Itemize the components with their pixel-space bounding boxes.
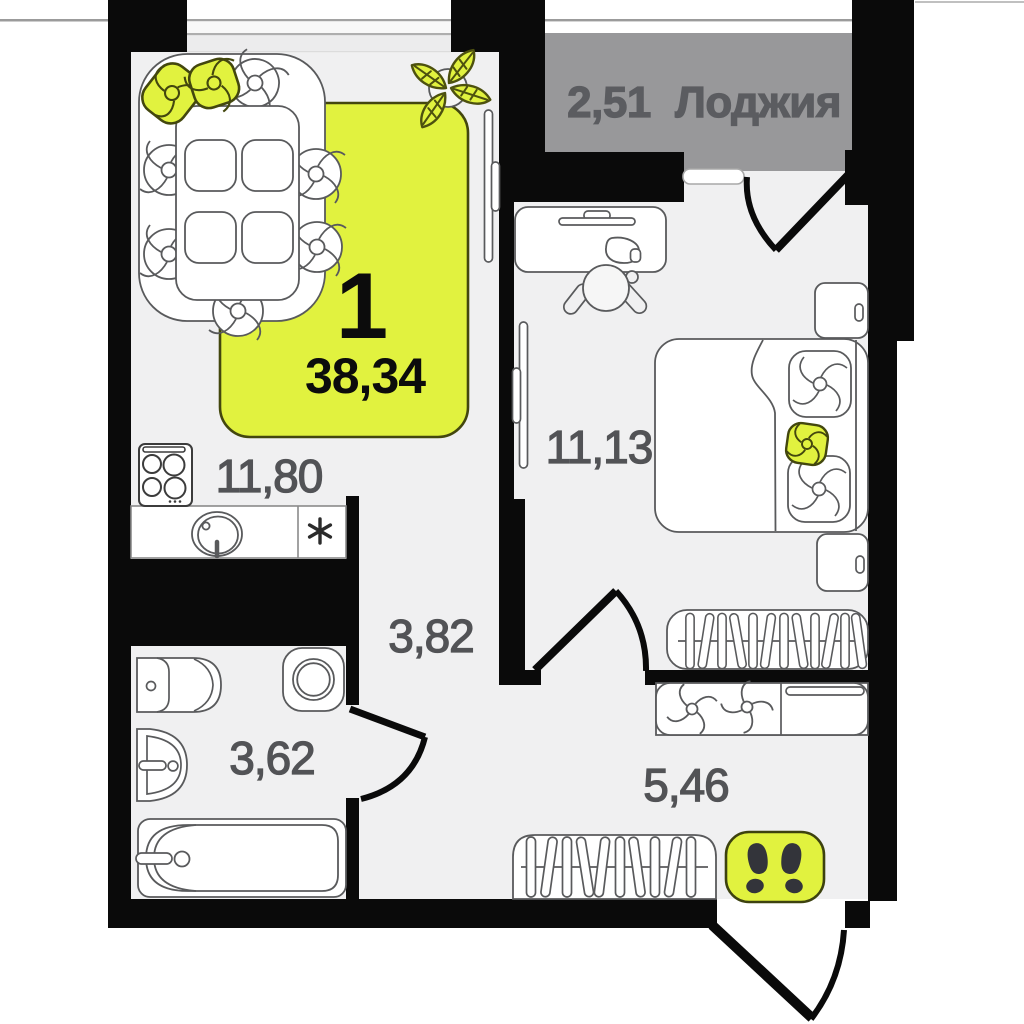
svg-text:38,34: 38,34 [305,348,426,404]
svg-text:1: 1 [336,253,388,358]
svg-text:5,46: 5,46 [643,759,729,811]
svg-text:2,51: 2,51 [567,78,651,127]
svg-text:3,62: 3,62 [229,732,315,784]
svg-text:Лоджия: Лоджия [675,78,841,127]
svg-text:11,80: 11,80 [216,450,323,502]
svg-text:3,82: 3,82 [388,610,474,662]
svg-text:11,13: 11,13 [546,421,653,473]
